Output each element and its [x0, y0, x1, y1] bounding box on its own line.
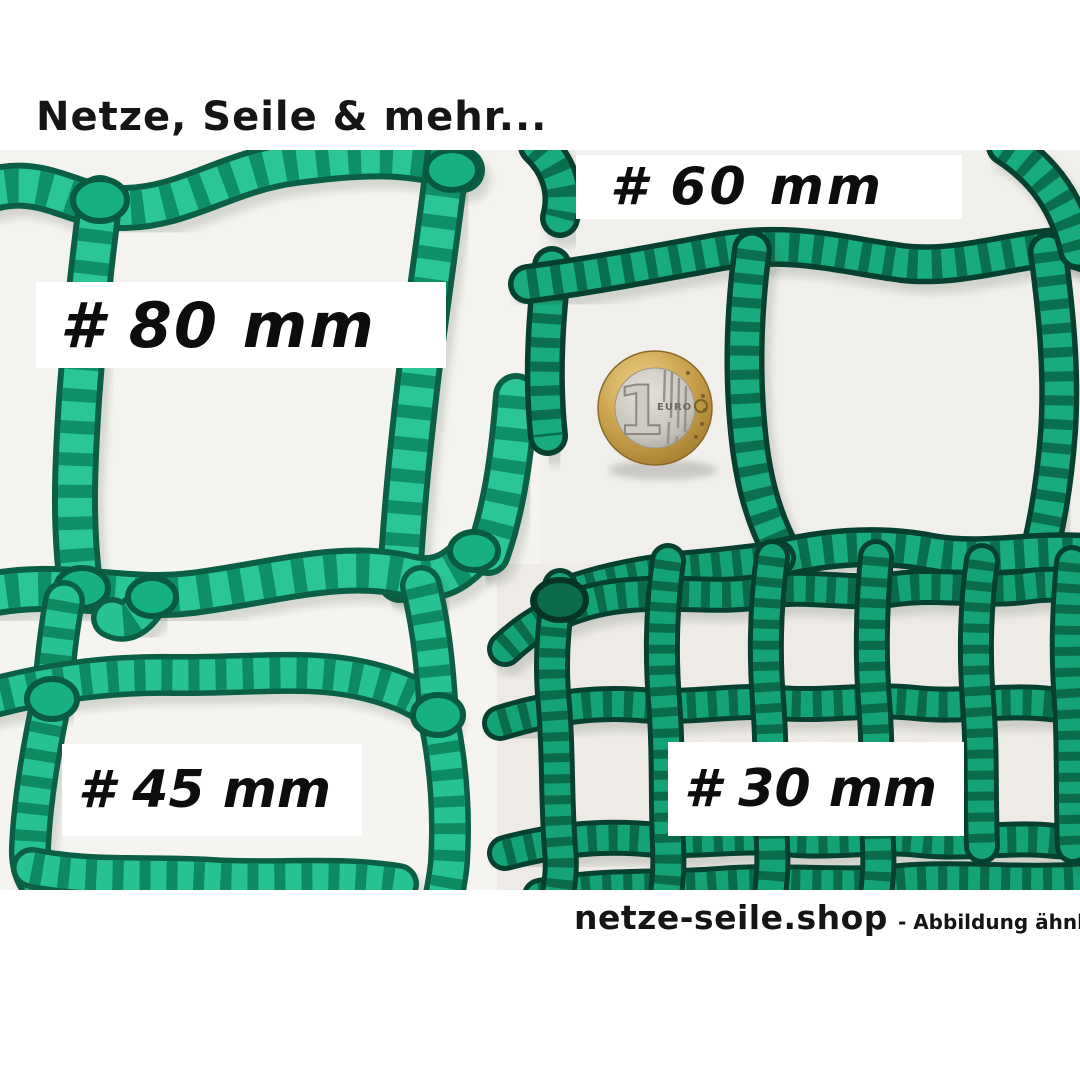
brand-header: Netze, Seile & mehr...	[36, 94, 547, 140]
mesh-label-45mm-text: # 45 mm	[78, 760, 331, 820]
mesh-label-45mm: # 45 mm	[62, 744, 362, 836]
coin-currency: EURO	[657, 402, 692, 413]
net-80mm	[0, 150, 522, 608]
euro-coin: 1 EURO	[598, 351, 717, 480]
mesh-label-60mm: # 60 mm	[576, 155, 962, 219]
footer-site-name: netze-seile.shop	[574, 898, 888, 937]
mesh-label-60mm-text: # 60 mm	[610, 157, 884, 217]
mesh-label-30mm-text: # 30 mm	[684, 759, 937, 819]
mesh-label-80mm: # 80 mm	[36, 282, 446, 368]
net-45mm	[0, 578, 463, 904]
product-image: 1 EURO Netze, Seile & mehr... # 60 mm # …	[0, 0, 1080, 1080]
mesh-label-30mm: # 30 mm	[668, 742, 964, 836]
mesh-label-80mm-text: # 80 mm	[60, 289, 376, 362]
footer-disclaimer: - Abbildung ähnlich	[898, 910, 1080, 934]
net-30mm	[500, 557, 1080, 905]
brand-footer: netze-seile.shop - Abbildung ähnlich	[574, 898, 1080, 937]
